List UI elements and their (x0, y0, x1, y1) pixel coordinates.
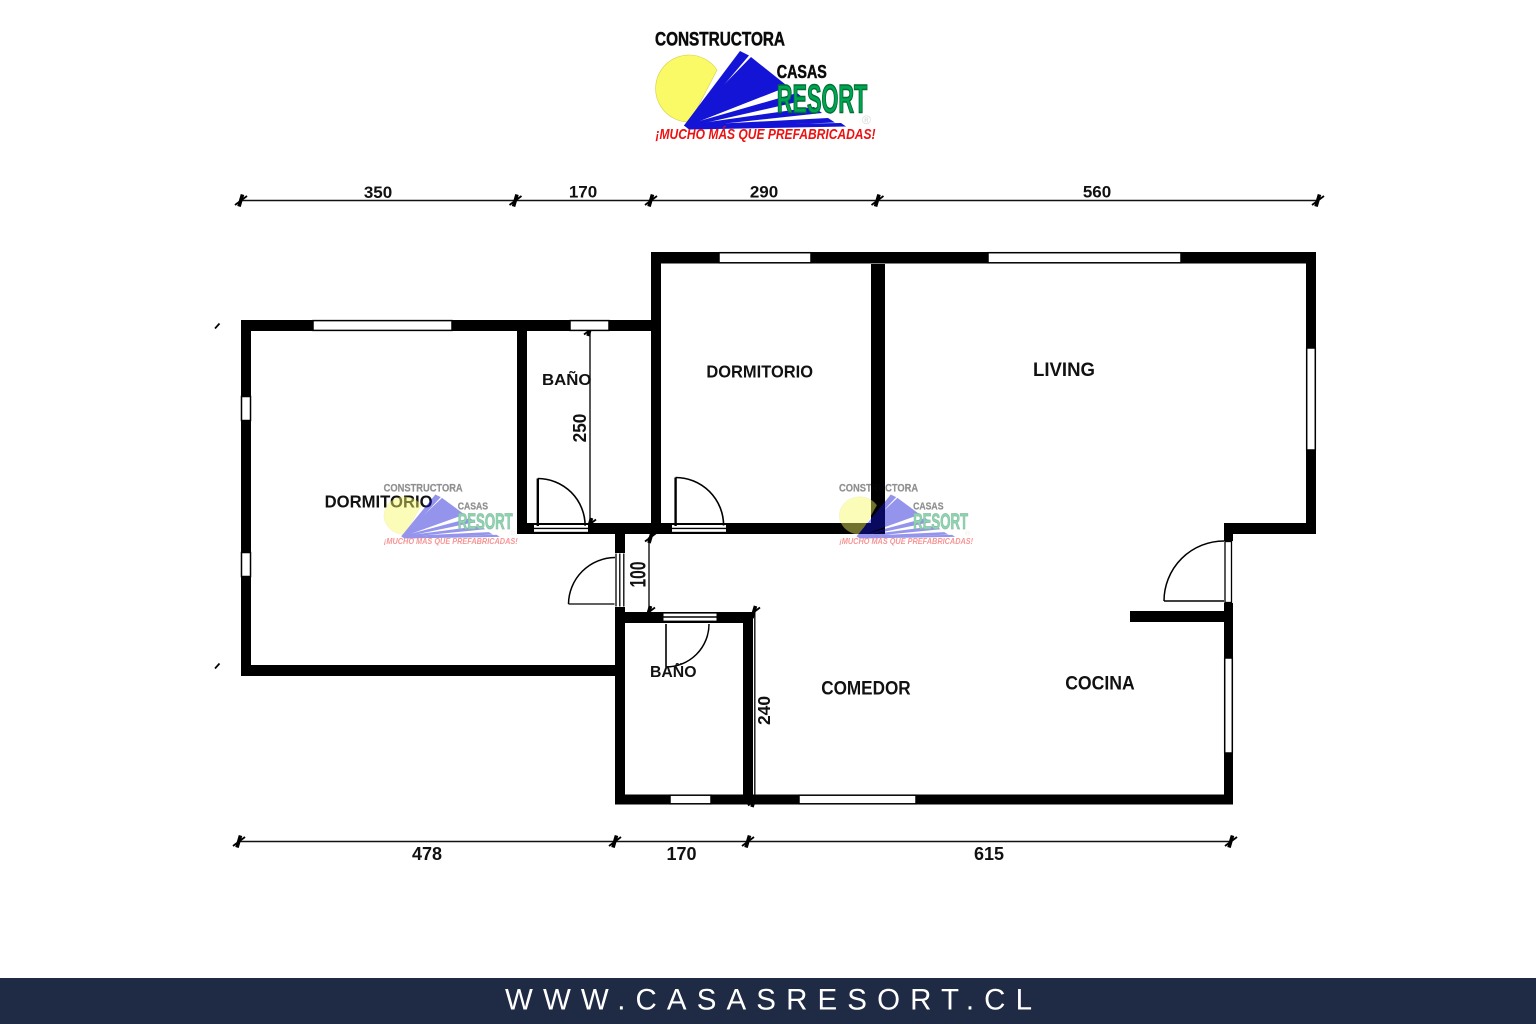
svg-text:100: 100 (626, 562, 651, 588)
svg-text:170: 170 (666, 844, 696, 864)
svg-text:250: 250 (569, 414, 590, 443)
svg-text:LIVING: LIVING (1033, 360, 1095, 381)
svg-text:350: 350 (364, 183, 392, 202)
svg-text:WWW.CASASRESORT.CL: WWW.CASASRESORT.CL (505, 984, 1032, 1017)
svg-text:COMEDOR: COMEDOR (821, 678, 911, 699)
svg-text:290: 290 (750, 183, 778, 202)
svg-text:170: 170 (569, 183, 597, 202)
svg-text:BAÑO: BAÑO (542, 371, 592, 389)
svg-text:DORMITORIO: DORMITORIO (706, 361, 813, 381)
svg-text:615: 615 (974, 844, 1004, 864)
svg-text:COCINA: COCINA (1065, 674, 1135, 695)
svg-text:BAÑO: BAÑO (650, 663, 697, 681)
svg-text:240: 240 (754, 696, 774, 725)
svg-text:560: 560 (1083, 183, 1111, 202)
svg-text:478: 478 (412, 844, 442, 864)
